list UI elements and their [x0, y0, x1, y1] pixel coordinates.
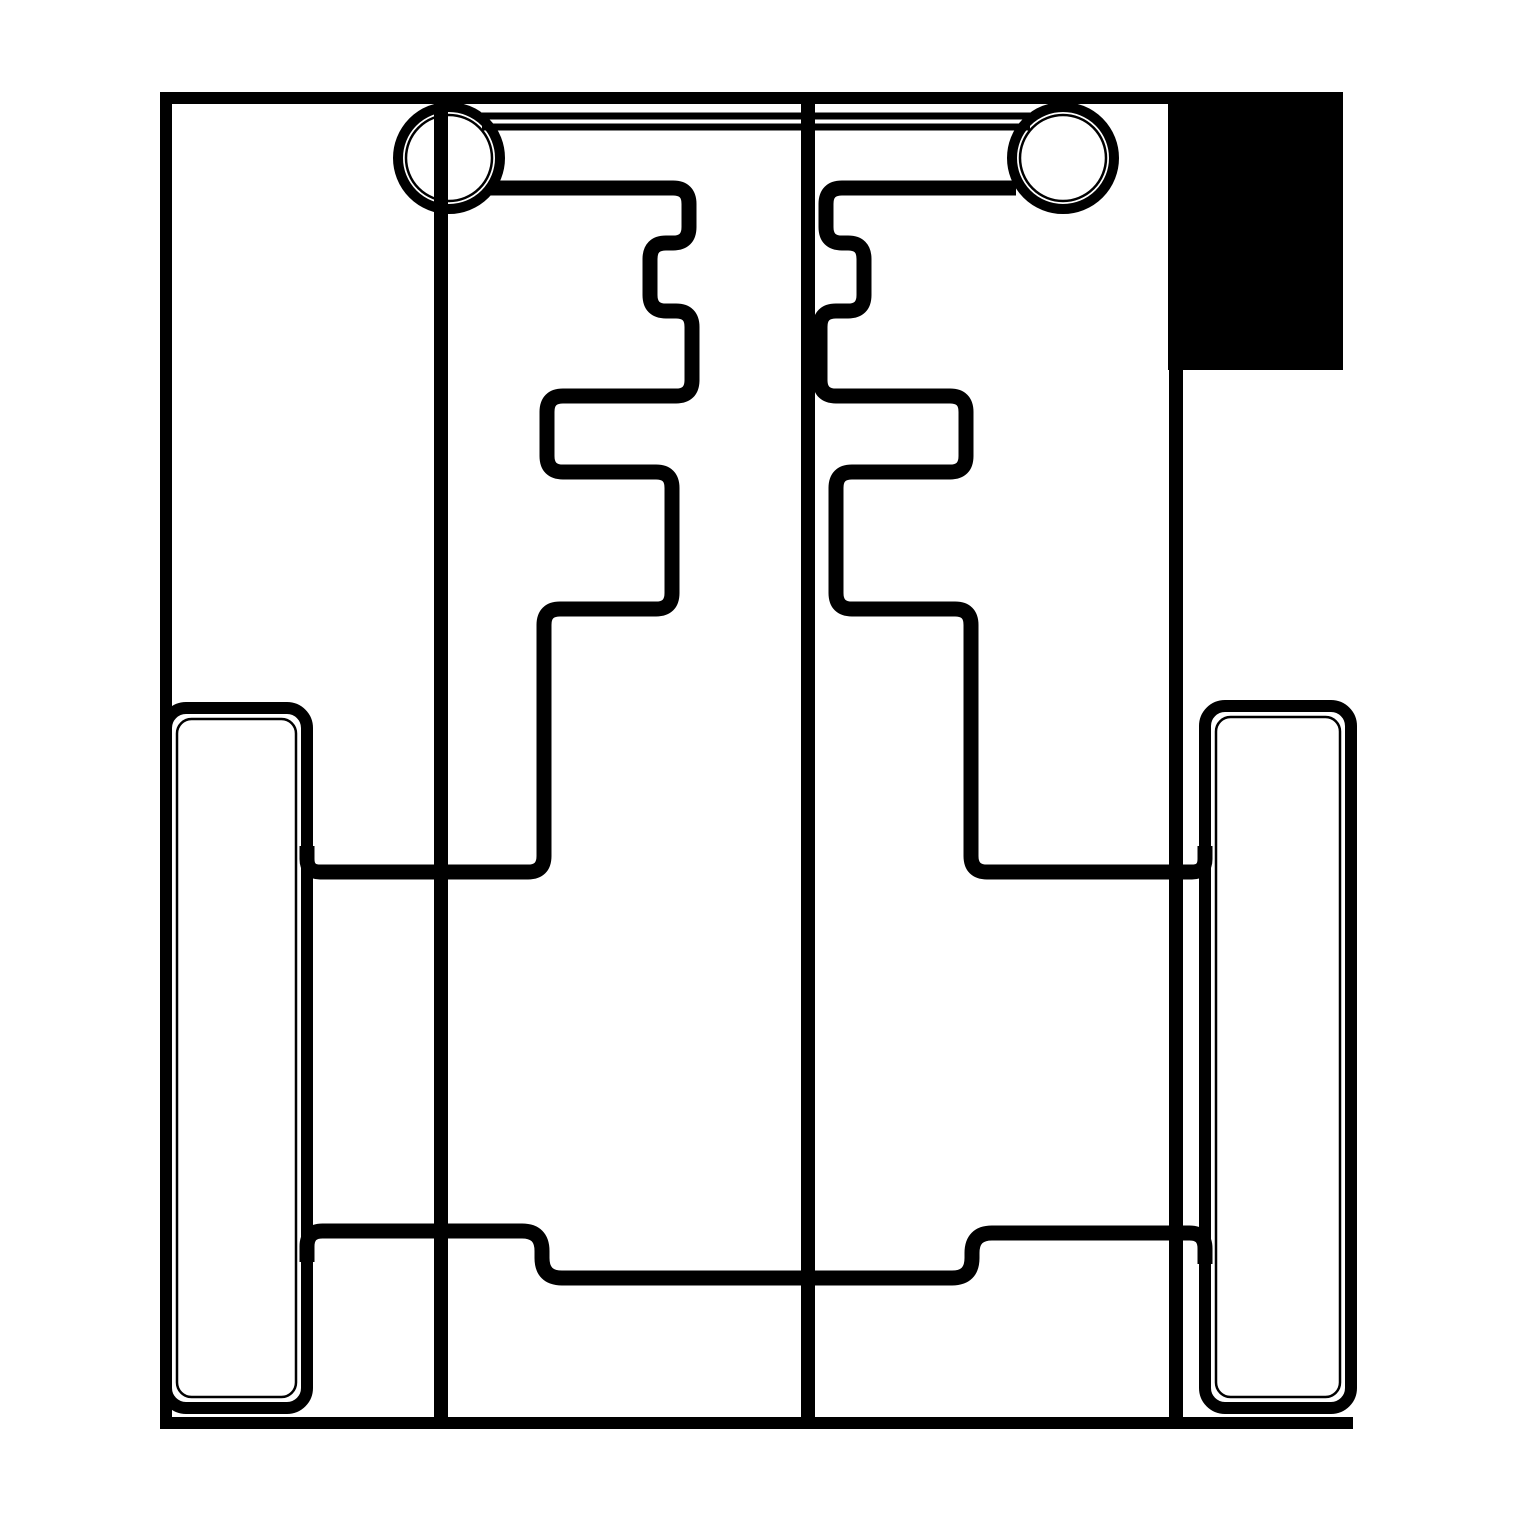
rivet-hole-right: [1012, 107, 1114, 209]
rivet-hole-left: [398, 107, 500, 209]
side-panel-right-inner-line: [1216, 717, 1340, 1397]
rivet-hole-left-inner-ring: [406, 115, 492, 201]
rivet-hole-right-inner-ring: [1020, 115, 1106, 201]
pattern-figure: [0, 0, 1519, 1519]
side-panel-left-inner-line: [177, 719, 296, 1397]
stepped-slot-left: [307, 188, 692, 872]
stepped-slot-right: [820, 188, 1205, 872]
pattern-drawing-canvas: [0, 0, 1519, 1519]
corner-fill-block: [1168, 92, 1343, 370]
side-panel-left: [166, 708, 307, 1408]
side-panel-right: [1205, 706, 1351, 1408]
